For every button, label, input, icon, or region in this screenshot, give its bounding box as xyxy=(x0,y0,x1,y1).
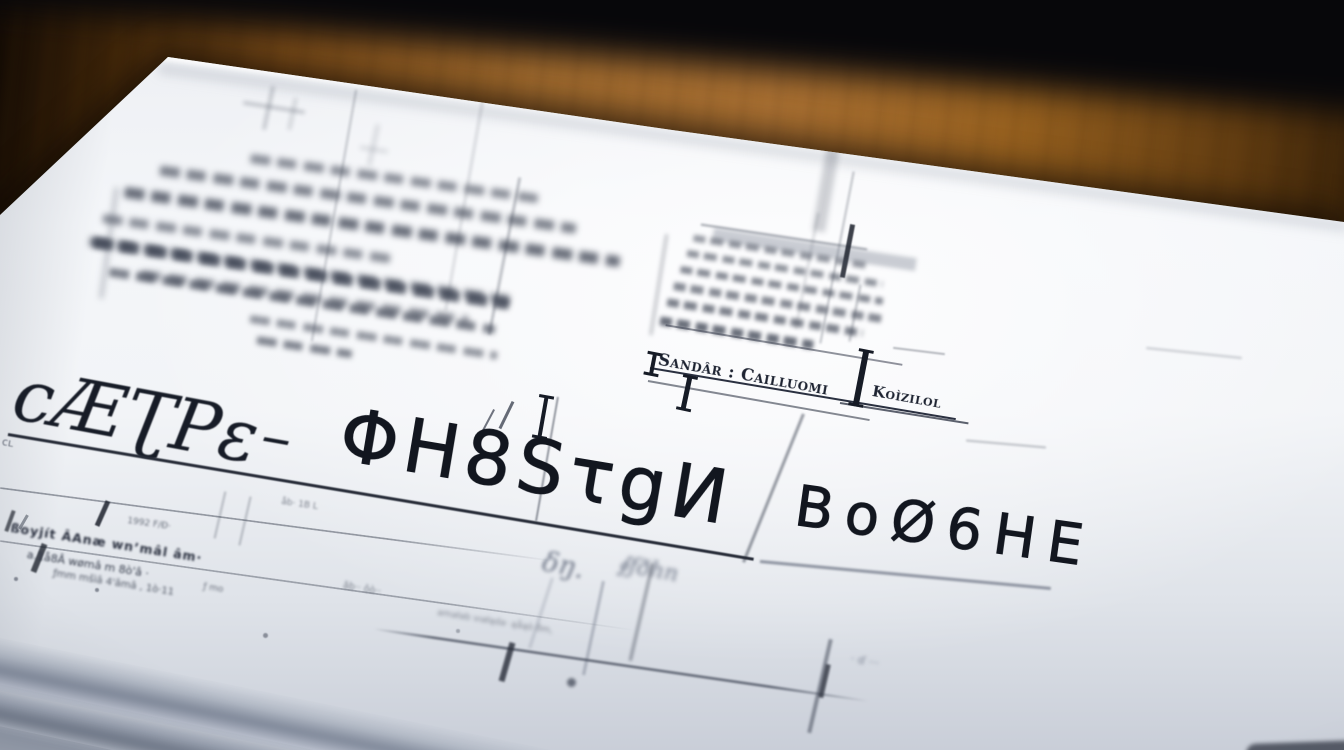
paper-sheet-wrapper: Sandâr : Caılluomı Koìzılol cÆƮΡε – ΦΗ8S… xyxy=(0,0,1344,750)
dim-label: åb· 1B L xyxy=(281,497,319,512)
tick-mark-bold xyxy=(95,500,111,527)
ibeam-mark xyxy=(681,376,693,410)
pencil-scribble: δŋ. xyxy=(540,546,588,585)
dim-label: 1992 F/Ð· xyxy=(127,516,172,532)
dot-mark xyxy=(95,588,99,592)
headline-script-word: cÆƮΡε xyxy=(7,352,266,480)
dim-row-text: åb·· ôò·· xyxy=(342,580,382,598)
construction-line xyxy=(742,413,804,562)
corner-object xyxy=(1246,740,1344,750)
dash-line xyxy=(966,440,1046,449)
dot-mark-large xyxy=(567,678,576,687)
construction-mark xyxy=(288,98,297,130)
margin-mark: cʟ xyxy=(1,435,15,450)
pencil-stroke xyxy=(529,578,554,649)
construction-mark xyxy=(368,124,379,166)
text-line xyxy=(250,154,538,203)
dim-row-text: ƒ mo xyxy=(202,582,224,595)
dash-line xyxy=(1146,347,1242,359)
bottom-dimension-line xyxy=(374,628,869,702)
headline-word-small: ΒοØ6ΗΕ xyxy=(791,474,1099,580)
dot-mark xyxy=(263,633,268,638)
pencil-scribble: · ɗ ··· xyxy=(850,652,880,670)
paper-sheet: Sandâr : Caılluomı Koìzılol cÆƮΡε – ΦΗ8S… xyxy=(0,0,1344,750)
text-line xyxy=(256,336,352,358)
dot-mark xyxy=(456,629,460,633)
dot-mark xyxy=(14,577,18,581)
photo-scene: Sandâr : Caılluomı Koìzılol cÆƮΡε – ΦΗ8S… xyxy=(0,0,1344,750)
